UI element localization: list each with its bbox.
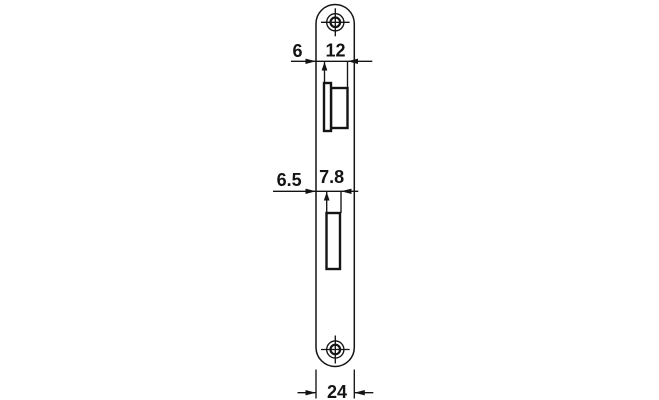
latch-cutout: [324, 83, 348, 131]
arrowhead-right-icon: [306, 189, 317, 194]
arrowhead-left-icon: [354, 390, 365, 395]
strike-plate-technical-drawing: 6 12 6.5 7.8 24: [0, 0, 659, 400]
dimension-group-bottom: 24: [298, 370, 374, 400]
deadbolt-opening: [327, 213, 341, 269]
dim-label-bolt-width: 7.8: [319, 167, 344, 187]
arrowhead-right-icon: [306, 59, 317, 64]
latch-opening: [331, 88, 348, 128]
deadbolt-cutout: [327, 213, 341, 269]
dim-label-offset-mid: 6.5: [277, 170, 302, 190]
latch-lip-flange: [324, 83, 331, 131]
drawing-canvas: 6 12 6.5 7.8 24: [0, 0, 659, 400]
dim-label-latch-width: 12: [325, 41, 345, 61]
arrowhead-right-icon: [306, 390, 317, 395]
dim-label-plate-width: 24: [327, 382, 347, 400]
dim-label-offset-top: 6: [292, 41, 302, 61]
